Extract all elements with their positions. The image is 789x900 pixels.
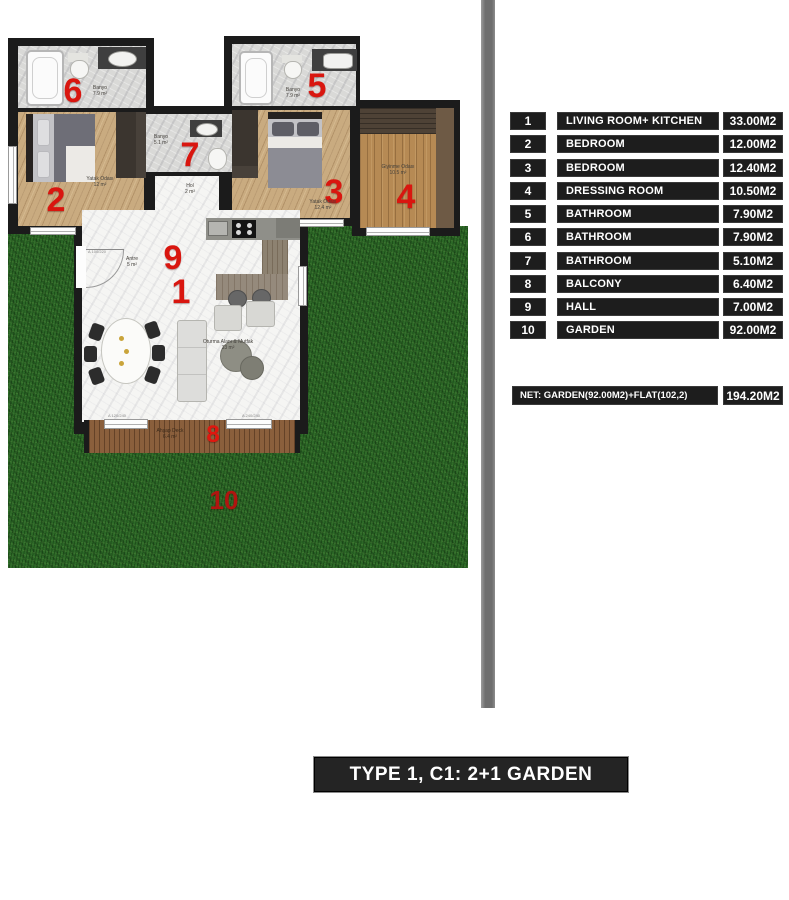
legend-row-area: 12.40M2: [723, 159, 783, 177]
armchair: [246, 301, 275, 327]
legend-row-area: 7.90M2: [723, 228, 783, 246]
room-label-bath5: Banyo 7.9 m²: [286, 87, 300, 99]
legend-row-area: 7.90M2: [723, 205, 783, 223]
wardrobe: [116, 112, 146, 178]
room-label-living: Oturma Alanı & Mutfak 33 m²: [203, 339, 253, 351]
legend-row-name: HALL: [557, 298, 719, 316]
sink-basin-icon: [108, 51, 137, 67]
armchair: [214, 305, 242, 331]
table-decor: [119, 361, 124, 366]
table-decor: [124, 349, 129, 354]
bathtub-icon: [26, 50, 64, 106]
bedroom2-window-south: [30, 227, 76, 235]
fridge-icon: [276, 218, 300, 238]
bed-sheet: [268, 137, 322, 148]
room-number-10: 10: [210, 487, 239, 513]
pillow: [272, 122, 294, 136]
legend-row: 3 BEDROOM 12.40M2: [510, 159, 785, 177]
legend-row-name: DRESSING ROOM: [557, 182, 719, 200]
legend-row-name: BEDROOM: [557, 159, 719, 177]
room-number-7: 7: [181, 138, 200, 172]
bedroom2-window: [8, 146, 17, 204]
legend-row-name: BATHROOM: [557, 205, 719, 223]
legend-row-area: 6.40M2: [723, 275, 783, 293]
room-number-4: 4: [397, 180, 416, 214]
room-area-text: 5 m²: [126, 262, 138, 268]
bedroom3-window-south: [294, 219, 344, 227]
kitchen-sink-icon: [208, 221, 228, 236]
legend-net-row: NET: GARDEN(92.00M2)+FLAT(102,2) 194.20M…: [512, 386, 785, 405]
dimension-label: A 100/220: [88, 249, 106, 254]
room-label-bath6: Banyo 7.9 m²: [93, 85, 107, 97]
legend-row-number: 5: [510, 205, 546, 223]
sink-basin-icon: [196, 123, 218, 136]
legend-row-name: LIVING ROOM+ KITCHEN: [557, 112, 719, 130]
coffee-table: [240, 356, 264, 380]
stove-burner: [247, 223, 252, 228]
toilet-icon: [208, 148, 227, 170]
pillow: [297, 122, 319, 136]
room-area-text: 5.1 m²: [154, 140, 168, 146]
bathtub-icon: [239, 51, 273, 105]
legend-row-name: BATHROOM: [557, 252, 719, 270]
legend-row-name: BALCONY: [557, 275, 719, 293]
room-area-text: 12 m²: [86, 182, 113, 188]
legend-row: 1 LIVING ROOM+ KITCHEN 33.00M2: [510, 112, 785, 130]
room-label-dressing: Giyinme Odası 10.5 m²: [381, 164, 414, 176]
legend-row-number: 9: [510, 298, 546, 316]
legend-row: 4 DRESSING ROOM 10.50M2: [510, 182, 785, 200]
stove-burner: [236, 223, 241, 228]
entrance-door-opening: [76, 246, 86, 288]
bed: [26, 114, 33, 182]
legend-row-number: 7: [510, 252, 546, 270]
net-total-area: 194.20M2: [723, 386, 783, 405]
bed-duvet: [268, 148, 322, 188]
wardrobe: [232, 110, 258, 178]
legend-row-area: 7.00M2: [723, 298, 783, 316]
legend-row: 10 GARDEN 92.00M2: [510, 321, 785, 339]
legend-row: 9 HALL 7.00M2: [510, 298, 785, 316]
room-number-1: 1: [172, 275, 191, 309]
room-label-bedroom3: Yatak Odası 12.4 m²: [309, 199, 336, 211]
pillow: [37, 151, 50, 178]
dining-chair: [84, 346, 97, 362]
legend-row-number: 3: [510, 159, 546, 177]
room-area-text: 7.9 m²: [286, 93, 300, 99]
dimension-label: A 240/240: [242, 413, 260, 418]
legend-row: 7 BATHROOM 5.10M2: [510, 252, 785, 270]
net-total-label: NET: GARDEN(92.00M2)+FLAT(102,2): [512, 386, 718, 405]
toilet-icon: [284, 61, 302, 79]
plan-title: TYPE 1, C1: 2+1 GARDEN: [313, 756, 629, 793]
dressing-window: [366, 227, 430, 236]
table-decor: [119, 336, 124, 341]
legend-row: 2 BEDROOM 12.00M2: [510, 135, 785, 153]
legend-row-number: 4: [510, 182, 546, 200]
room-label-hall: Hol 2 m²: [185, 183, 195, 195]
legend-row-area: 10.50M2: [723, 182, 783, 200]
room-label-antre: Antre 5 m²: [126, 256, 138, 268]
sink-basin-icon: [323, 53, 353, 69]
room-area-text: 6.4 m²: [157, 434, 184, 440]
room-number-6: 6: [64, 74, 83, 108]
legend-row-name: GARDEN: [557, 321, 719, 339]
living-window-left: [104, 419, 148, 429]
legend-row-number: 8: [510, 275, 546, 293]
dining-chair: [152, 345, 165, 361]
legend-row-number: 6: [510, 228, 546, 246]
legend-row-number: 2: [510, 135, 546, 153]
legend-row: 8 BALCONY 6.40M2: [510, 275, 785, 293]
room-area-text: 33 m²: [203, 345, 253, 351]
floor-plan: 1 2 3 4 5 6 7 8 9 10 Oturma Alanı & Mutf…: [0, 0, 480, 600]
living-window-east: [298, 266, 307, 306]
room-label-deck: Ahşap Deck 6.4 m²: [157, 428, 184, 440]
room-number-9: 9: [164, 241, 183, 275]
sofa: [177, 320, 207, 402]
room-area-text: 7.9 m²: [93, 91, 107, 97]
legend-row-name: BATHROOM: [557, 228, 719, 246]
legend-row-number: 1: [510, 112, 546, 130]
pillow: [37, 119, 50, 146]
legend-row-area: 12.00M2: [723, 135, 783, 153]
floor-plan-sheet: 1 2 3 4 5 6 7 8 9 10 Oturma Alanı & Mutf…: [0, 0, 789, 900]
room-area-text: 2 m²: [185, 189, 195, 195]
legend-row-number: 10: [510, 321, 546, 339]
living-window-right: [226, 419, 272, 429]
legend-row-area: 5.10M2: [723, 252, 783, 270]
legend-row-area: 33.00M2: [723, 112, 783, 130]
room-area-text: 12.4 m²: [309, 205, 336, 211]
room-number-2: 2: [47, 183, 66, 217]
bed: [268, 112, 322, 119]
legend-row-area: 92.00M2: [723, 321, 783, 339]
stove-icon: [232, 220, 256, 238]
dressing-closet-right: [436, 108, 454, 228]
legend-row-name: BEDROOM: [557, 135, 719, 153]
dimension-label: A 120/240: [108, 413, 126, 418]
room-label-bedroom2: Yatak Odası 12 m²: [86, 176, 113, 188]
legend-row: 5 BATHROOM 7.90M2: [510, 205, 785, 223]
room-area-text: 10.5 m²: [381, 170, 414, 176]
stove-burner: [236, 230, 241, 235]
vertical-divider-bar: [481, 0, 495, 708]
room-label-bath7: Banyo 5.1 m²: [154, 134, 168, 146]
room-number-5: 5: [308, 69, 327, 103]
legend-row: 6 BATHROOM 7.90M2: [510, 228, 785, 246]
room-number-8: 8: [206, 423, 219, 447]
stove-burner: [247, 230, 252, 235]
